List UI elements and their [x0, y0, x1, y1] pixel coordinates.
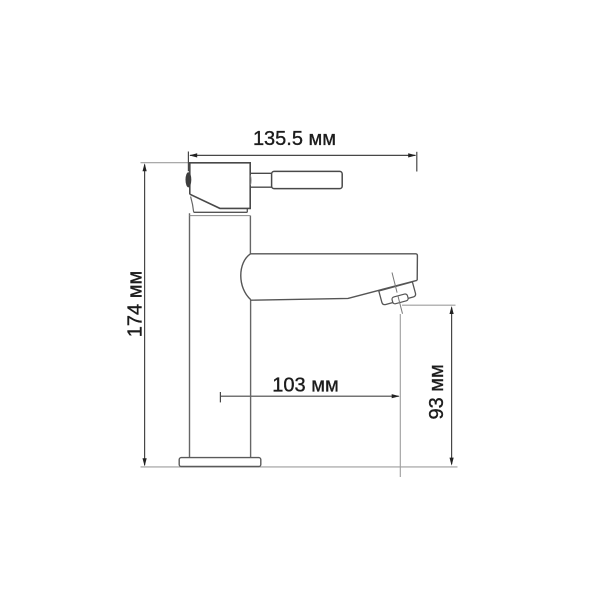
svg-text:174 мм: 174 мм	[124, 271, 146, 337]
svg-text:103 мм: 103 мм	[272, 375, 338, 397]
svg-text:135.5 мм: 135.5 мм	[253, 128, 336, 150]
svg-text:93 мм: 93 мм	[426, 364, 448, 419]
